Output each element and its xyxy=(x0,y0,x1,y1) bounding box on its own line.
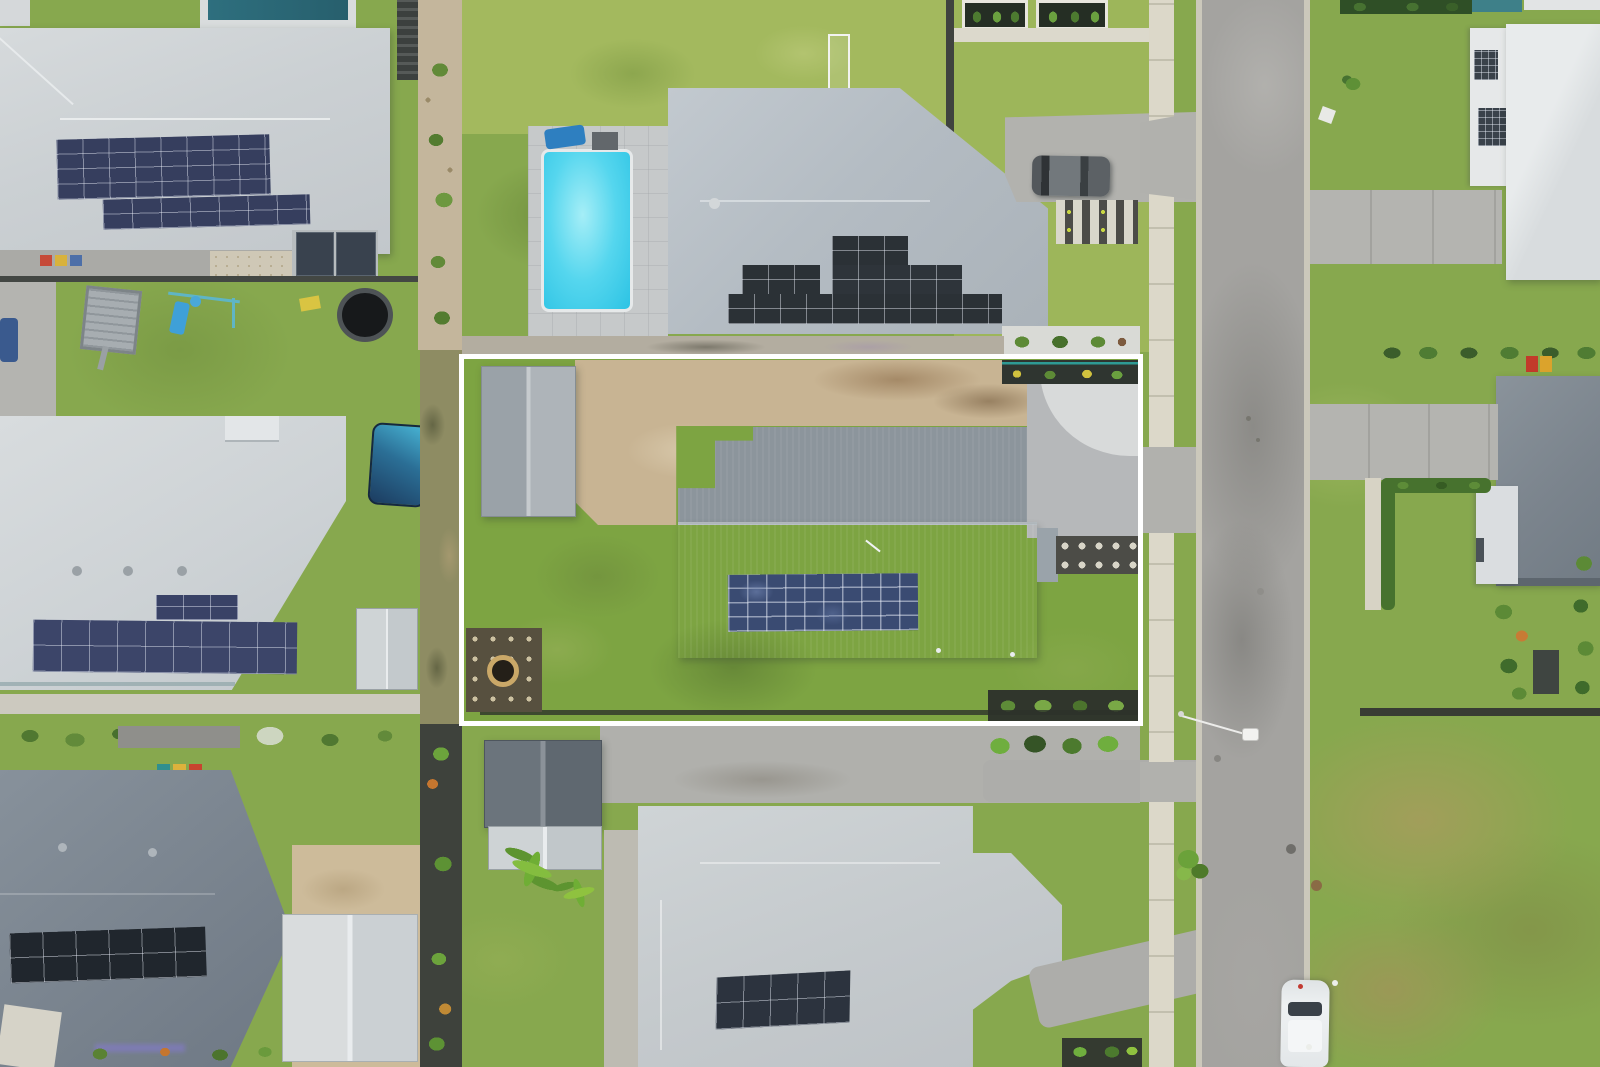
aerial-photo xyxy=(0,0,1600,1067)
wheelie-bins xyxy=(1540,356,1552,372)
driveway-crossing xyxy=(1140,112,1198,200)
car-roof xyxy=(1288,1020,1322,1052)
solar-array xyxy=(103,194,311,229)
solar-array-black xyxy=(832,236,908,266)
garden-bed xyxy=(60,1040,280,1067)
roof-ridge-line xyxy=(0,893,215,895)
swing-set-frame xyxy=(232,298,235,328)
solar-array-black xyxy=(728,294,1002,324)
fence-line xyxy=(946,0,954,134)
upper-window-grid xyxy=(1478,108,1506,146)
roof-vent xyxy=(148,848,157,857)
fence-line xyxy=(0,276,462,282)
soccer-goal xyxy=(828,34,850,92)
roof-vent xyxy=(72,566,82,576)
swimming-pool xyxy=(541,149,633,312)
solar-array xyxy=(156,595,238,620)
fence-garden-strip xyxy=(420,724,462,1067)
planter-box xyxy=(1036,0,1108,30)
verge-tree xyxy=(1170,840,1216,888)
porch-door xyxy=(1476,538,1484,562)
planter-box xyxy=(962,0,1028,30)
eave-line xyxy=(0,682,235,686)
street-light-lamp xyxy=(1242,728,1259,741)
corner-roof-fragment xyxy=(0,0,30,26)
roof-ridge-line xyxy=(700,862,940,864)
suv-car xyxy=(1032,155,1111,196)
driveway xyxy=(1310,190,1502,264)
driveway xyxy=(1310,404,1498,480)
top-right-house-roof xyxy=(1506,24,1600,280)
fence-line xyxy=(1360,708,1600,716)
upper-window-grid xyxy=(1474,50,1498,80)
car-windshield xyxy=(1288,1002,1322,1016)
manhole xyxy=(1214,755,1221,762)
neighbour-pool-teal xyxy=(1472,0,1522,12)
swing-ball xyxy=(190,296,201,307)
dark-shed xyxy=(484,740,602,828)
manhole xyxy=(1286,844,1296,854)
kerb-gutter xyxy=(1304,0,1310,1067)
shrub-border xyxy=(1568,538,1600,708)
neighbour-pool-water xyxy=(208,0,348,20)
white-gable-shed xyxy=(282,914,418,1062)
driveway-crossing xyxy=(1140,447,1198,533)
solar-water-panel xyxy=(296,232,334,276)
roof-vent xyxy=(177,566,187,576)
solar-water-panel xyxy=(336,232,376,276)
street-light-pole xyxy=(1178,711,1184,717)
right-house-porch xyxy=(1476,486,1518,584)
hedge-row xyxy=(1340,0,1472,14)
lawn-dot xyxy=(1306,1044,1312,1050)
driveway-crossing xyxy=(1140,762,1198,802)
verge-circle xyxy=(1311,880,1322,891)
hedge-L-horizontal xyxy=(1381,478,1491,493)
road-dot xyxy=(1246,416,1251,421)
garden-shed xyxy=(356,608,418,690)
wheelie-bins xyxy=(70,255,82,266)
wheelie-bins xyxy=(55,255,67,266)
solar-array xyxy=(33,620,298,675)
scrub-strip xyxy=(420,350,462,724)
solar-array xyxy=(56,134,270,200)
car-badge xyxy=(1298,984,1303,989)
concrete-edge xyxy=(954,28,1150,42)
solar-array-black xyxy=(742,265,820,295)
kerb-gutter xyxy=(1196,0,1202,1067)
pool-pump xyxy=(592,132,618,150)
roof-vent xyxy=(709,198,720,209)
side-path xyxy=(604,830,638,1067)
trampoline xyxy=(337,288,393,342)
roof-ridge-line xyxy=(700,200,930,202)
road xyxy=(1196,0,1310,1067)
manhole xyxy=(1257,588,1264,595)
roof-vent xyxy=(123,566,133,576)
wheelie-bins xyxy=(40,255,52,266)
roof-vent xyxy=(58,843,67,852)
hedge-L-vertical xyxy=(1381,478,1395,610)
pebble-patch xyxy=(210,251,292,277)
solar-array-black xyxy=(832,265,962,295)
roof-ridge-line xyxy=(60,118,330,120)
property-boundary-box xyxy=(459,354,1143,726)
blue-car xyxy=(0,318,18,362)
path-corner xyxy=(0,1004,62,1067)
solar-array xyxy=(9,927,207,984)
slat-fence-top xyxy=(397,0,418,80)
lawn-dot xyxy=(1332,980,1338,986)
box-trailer xyxy=(80,285,142,355)
stepping-stone-pad xyxy=(1056,200,1138,244)
roof-ridge-line xyxy=(660,900,662,1050)
driveway xyxy=(118,726,240,748)
fence-line xyxy=(1533,650,1559,694)
garden-bed xyxy=(1062,1038,1142,1067)
small-tree xyxy=(1338,70,1368,98)
gravel-garden-strip xyxy=(418,0,462,350)
hedge-row xyxy=(1374,344,1600,362)
roof-gable-highlight xyxy=(225,416,279,442)
road-dot xyxy=(1256,438,1260,442)
solar-array xyxy=(716,970,851,1029)
wheelie-bins xyxy=(1526,356,1538,372)
roof-fragment xyxy=(1524,0,1600,10)
garden-path xyxy=(1365,478,1381,610)
